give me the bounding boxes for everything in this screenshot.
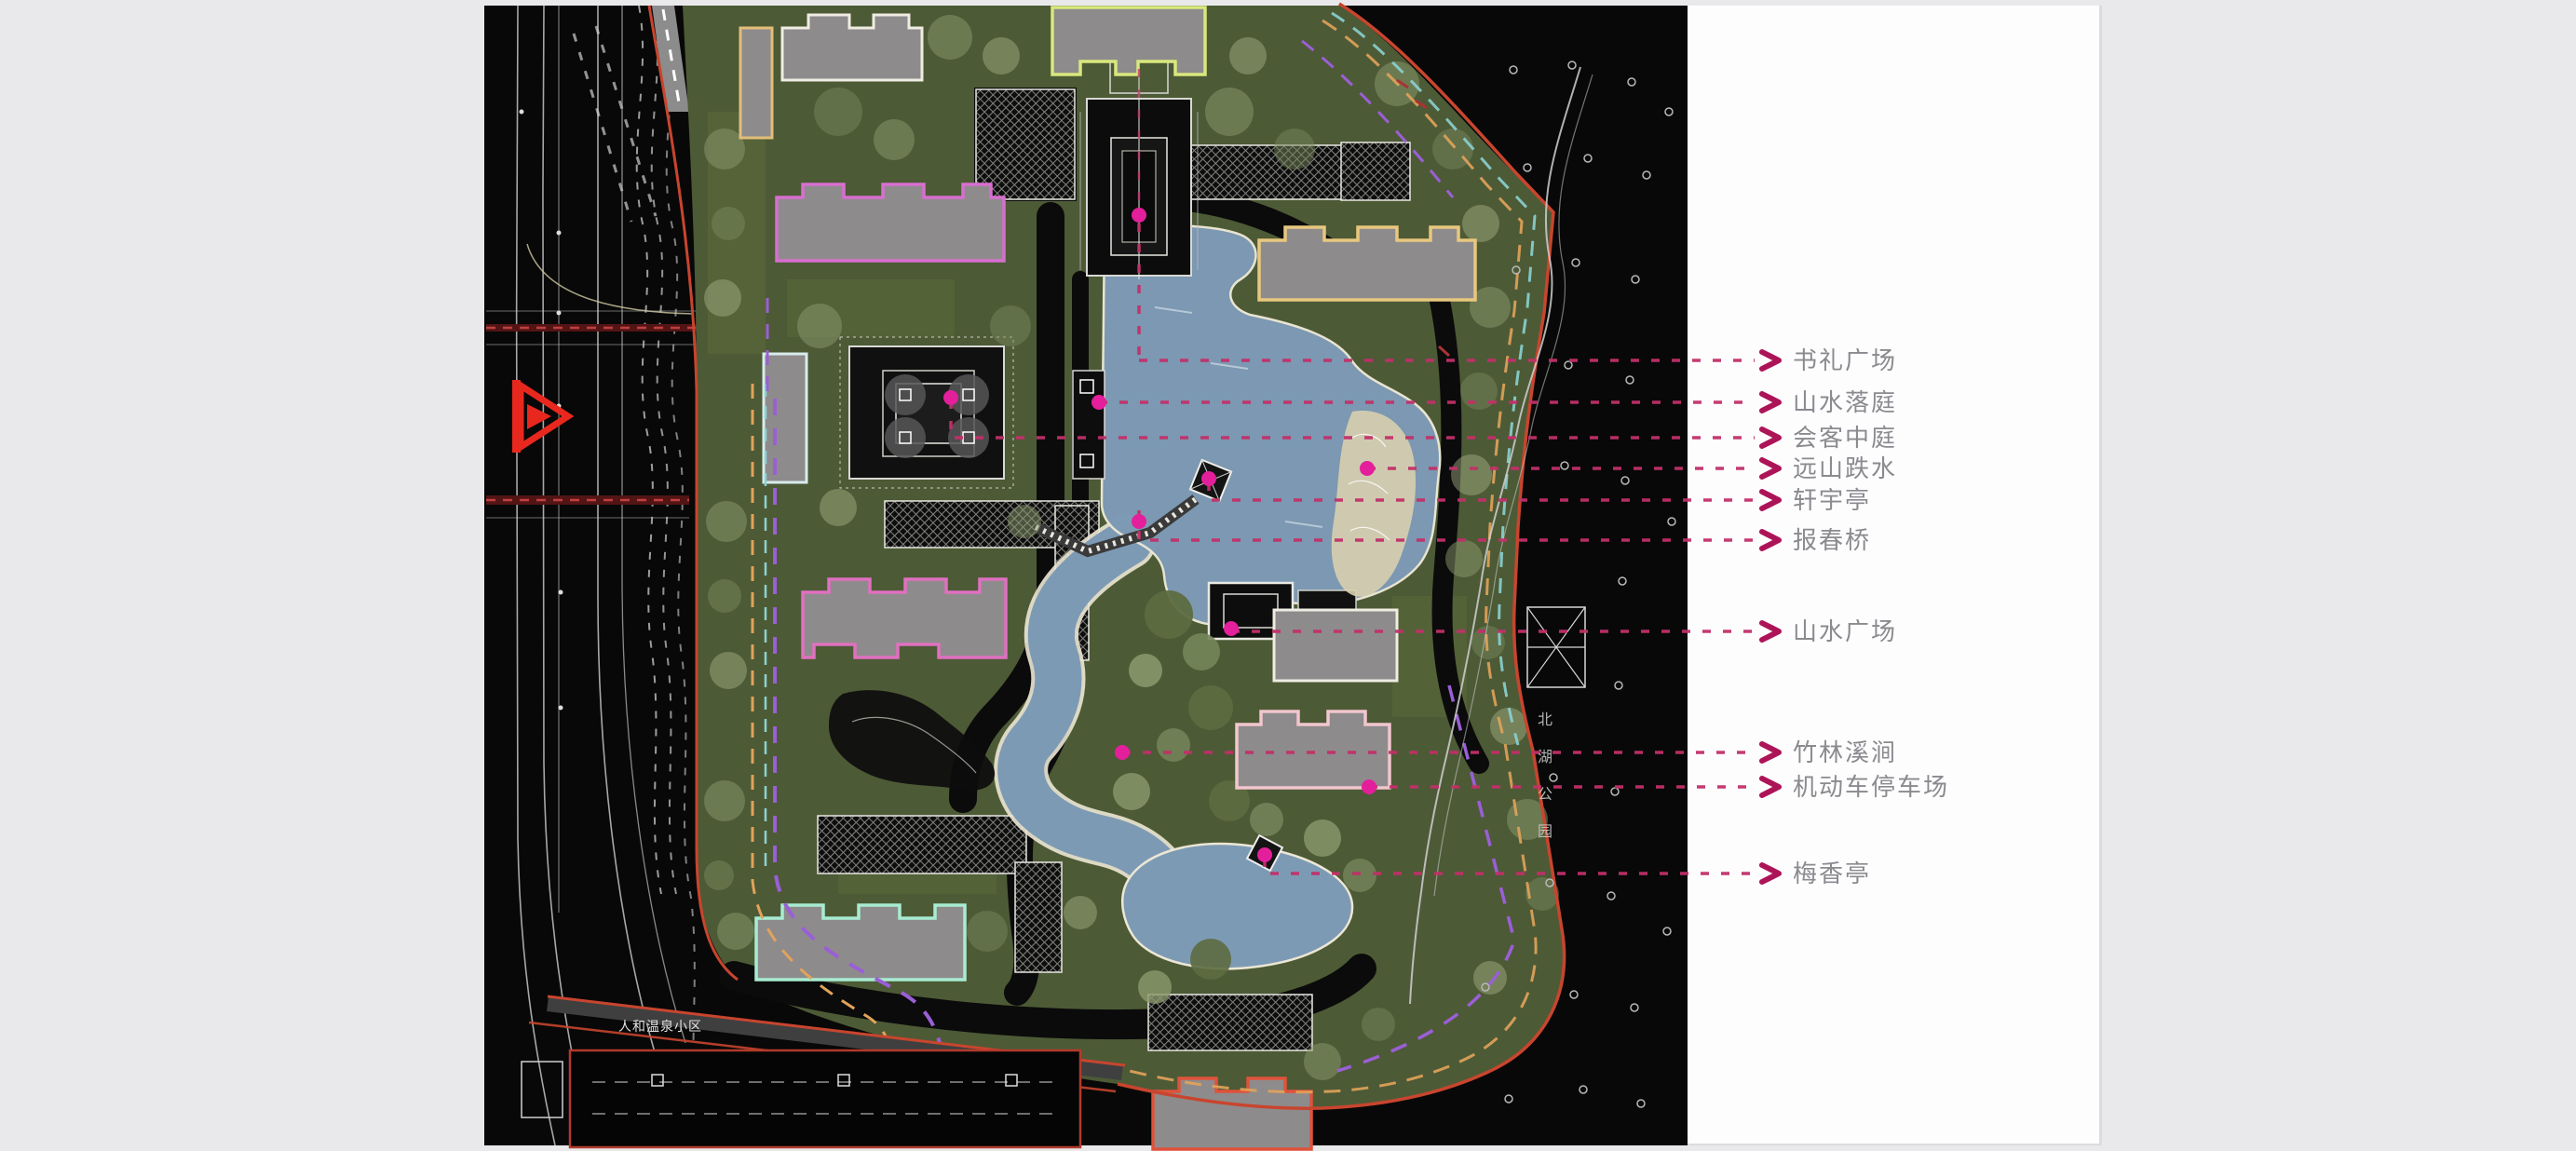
annotation-label-huike-zhongting: 会客中庭 [1793,422,1897,454]
annotation-label-xuanyu-ting: 轩宇亭 [1793,484,1871,516]
annotation-label-zhulin-xijian: 竹林溪涧 [1793,737,1897,768]
annotation-label-yuanshan-dieshui: 远山跌水 [1793,453,1897,484]
annotation-label-shanshui-plaza: 山水广场 [1793,616,1897,647]
guest-courtyard [840,337,1013,488]
annotation-label-parking: 机动车停车场 [1793,771,1949,803]
site-plan-graphic [0,0,2576,1151]
annotation-label-shuli-plaza: 书礼广场 [1793,345,1897,376]
neighborhood-name-label: 人和温泉小区 [618,1017,702,1036]
annotation-label-meixiang-ting: 梅香亭 [1793,858,1871,889]
slide-canvas: 书礼广场 山水落庭 会客中庭 远山跌水 轩宇亭 报春桥 山水广场 竹林溪涧 机动… [0,0,2576,1151]
annotation-label-shanshui-luoting: 山水落庭 [1793,386,1897,418]
site-plan-image [484,4,1688,1149]
annotation-label-baochun-qiao: 报春桥 [1793,524,1871,556]
park-name-label: 北湖公园 [1531,711,1553,860]
